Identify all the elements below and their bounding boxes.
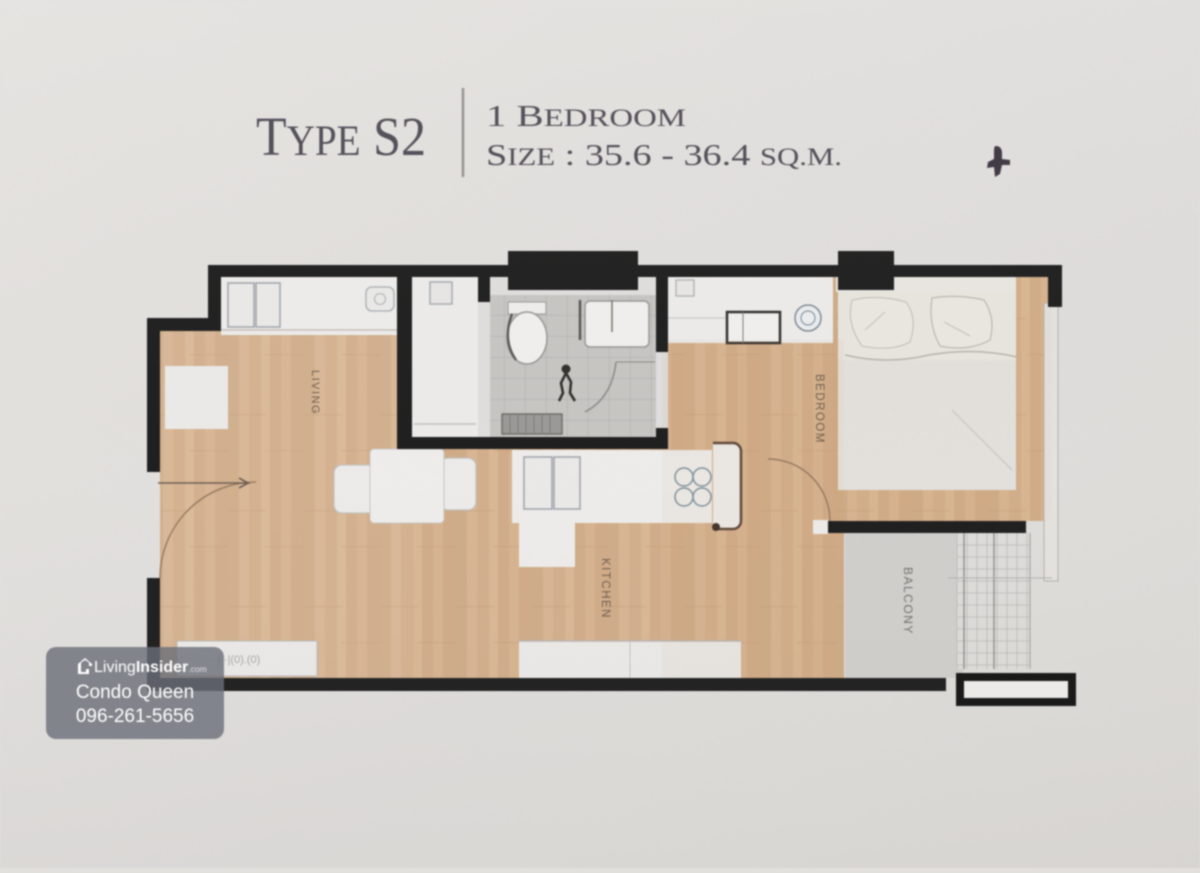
svg-text:Condo Queen: Condo Queen	[76, 682, 194, 703]
svg-text:096-261-5656: 096-261-5656	[76, 706, 194, 727]
